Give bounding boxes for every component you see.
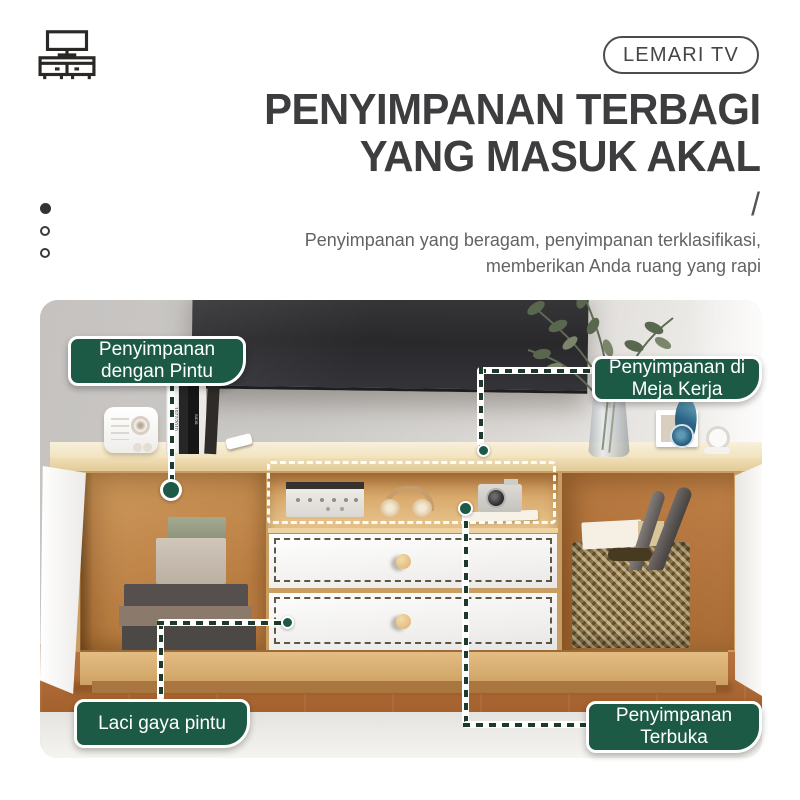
product-infographic: LEMARI TV PENYIMPANAN TERBAGI YANG MASUK… xyxy=(0,0,800,800)
leader-line-door xyxy=(168,384,175,482)
badge-label: LEMARI TV xyxy=(623,44,739,67)
callout-drawer-storage: Laci gaya pintu xyxy=(74,699,250,748)
callout-desk-storage: Penyimpanan di Meja Kerja xyxy=(592,356,762,402)
dot-ring xyxy=(40,226,50,236)
cabinet-plinth-base xyxy=(92,681,716,693)
subtitle-line-1: Penyimpanan yang beragam, penyimpanan te… xyxy=(305,227,761,253)
marker-drawer xyxy=(281,616,294,629)
storage-box-green xyxy=(168,517,226,538)
callout-text: Penyimpanan xyxy=(71,339,243,361)
dot-ring xyxy=(40,248,50,258)
subtitle-line-2: memberikan Anda ruang yang rapi xyxy=(305,253,761,279)
callout-text: Terbuka xyxy=(589,727,759,749)
drawer-dashed-outline xyxy=(274,538,552,582)
title-line-2: YANG MASUK AKAL xyxy=(265,133,761,180)
retro-speaker xyxy=(104,407,158,453)
white-snail-ornament xyxy=(704,426,730,454)
callout-text: Meja Kerja xyxy=(595,379,759,401)
rattan-basket-front xyxy=(572,570,690,648)
leader-line-desk xyxy=(479,367,596,374)
callout-text: Laci gaya pintu xyxy=(77,713,247,735)
category-badge: LEMARI TV xyxy=(603,36,759,74)
book-spine xyxy=(179,384,188,454)
book-spine: SICIS xyxy=(188,384,199,454)
marker-door xyxy=(160,479,182,501)
callout-text: dengan Pintu xyxy=(71,361,243,383)
cabinet-plinth xyxy=(80,650,728,685)
page-title: PENYIMPANAN TERBAGI YANG MASUK AKAL xyxy=(265,86,761,180)
leader-line-drawer xyxy=(157,622,164,701)
right-cabinet-door-open xyxy=(735,464,762,696)
subtitle: Penyimpanan yang beragam, penyimpanan te… xyxy=(305,227,761,279)
callout-door-storage: Penyimpanan dengan Pintu xyxy=(68,336,246,386)
leader-line-desk xyxy=(477,367,484,447)
blue-snail-ornament xyxy=(670,396,700,450)
leader-line-drawer xyxy=(157,619,284,626)
book-spine xyxy=(204,384,220,455)
callout-text: Penyimpanan xyxy=(589,705,759,727)
dot-filled xyxy=(40,203,51,214)
tv-cabinet-icon xyxy=(37,29,97,81)
marker-desk xyxy=(477,444,490,457)
drawer-dashed-outline xyxy=(274,597,552,644)
decorative-dots xyxy=(40,203,52,270)
marker-open xyxy=(458,501,473,516)
leader-line-open xyxy=(462,508,469,725)
title-line-1: PENYIMPANAN TERBAGI xyxy=(265,86,761,133)
storage-box-beige xyxy=(156,538,226,584)
stacked-book xyxy=(124,584,248,607)
stacked-book xyxy=(122,626,256,650)
decorative-slash: / xyxy=(751,186,760,223)
open-shelf-dashed-outline xyxy=(267,461,556,524)
callout-text: Penyimpanan di xyxy=(595,357,759,379)
glass-vase xyxy=(588,398,630,457)
leader-line-open xyxy=(463,721,589,728)
basket-white-box xyxy=(581,519,642,549)
callout-open-storage: Penyimpanan Terbuka xyxy=(586,701,762,753)
